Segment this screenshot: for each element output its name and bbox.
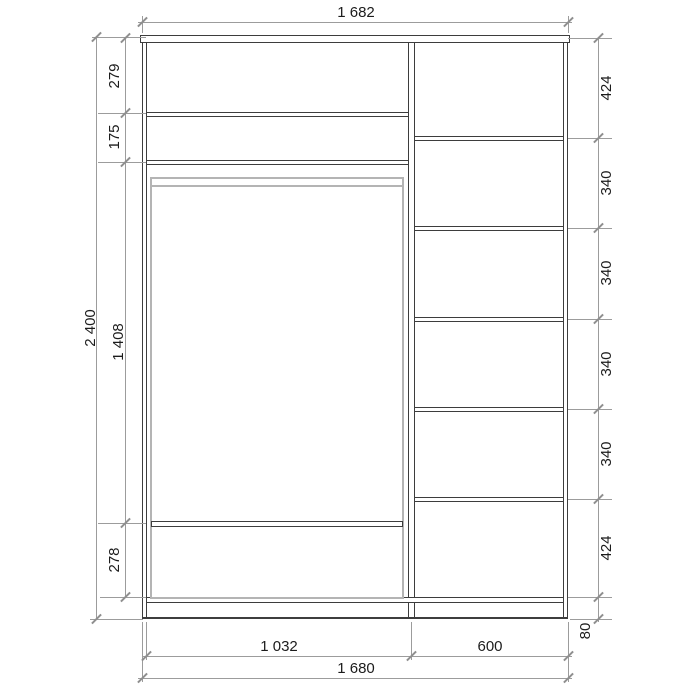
dim-label-right-424-top: 424 — [598, 38, 616, 138]
left-shelf-3 — [151, 521, 403, 527]
right-shelf-5 — [414, 497, 564, 502]
dim-label-right-340-4: 340 — [598, 404, 616, 504]
extension-line — [568, 622, 569, 682]
left-side-panel — [142, 42, 147, 619]
center-divider-panel — [408, 42, 415, 619]
dimension-line — [138, 22, 572, 23]
right-shelf-3 — [414, 317, 564, 322]
top-panel — [140, 35, 570, 43]
dim-label-left-1408: 1 408 — [110, 292, 128, 392]
door-inner-edge-line — [152, 185, 402, 187]
right-side-panel — [563, 42, 568, 619]
right-shelf-1 — [414, 136, 564, 141]
dim-label-plinth-80: 80 — [577, 581, 595, 681]
door-panel-outline — [150, 177, 404, 599]
dim-label-bottom-total: 1 680 — [306, 660, 406, 678]
dim-label-bottom-left: 1 032 — [229, 638, 329, 656]
dim-label-right-340-1: 340 — [598, 133, 616, 233]
extension-line — [90, 619, 143, 620]
dimension-line — [142, 656, 572, 657]
left-shelf-2 — [146, 160, 409, 165]
right-shelf-2 — [414, 226, 564, 231]
dim-label-left-278: 278 — [106, 510, 124, 610]
dim-label-right-340-3: 340 — [598, 314, 616, 414]
extension-line — [142, 622, 143, 682]
dim-label-right-340-2: 340 — [598, 223, 616, 323]
dim-label-bottom-right: 600 — [440, 638, 540, 656]
left-shelf-1 — [146, 112, 409, 117]
dim-label-left-175: 175 — [106, 87, 124, 187]
dim-label-top-width: 1 682 — [306, 4, 406, 22]
plinth-base-line — [142, 617, 568, 619]
dim-label-right-424-bottom: 424 — [598, 498, 616, 598]
right-shelf-4 — [414, 407, 564, 412]
dim-label-height-total: 2 400 — [82, 278, 100, 378]
dimension-line — [138, 678, 572, 679]
wardrobe-dimension-drawing: 1 682 2 400 279 175 1 408 278 424 340 34… — [0, 0, 700, 700]
